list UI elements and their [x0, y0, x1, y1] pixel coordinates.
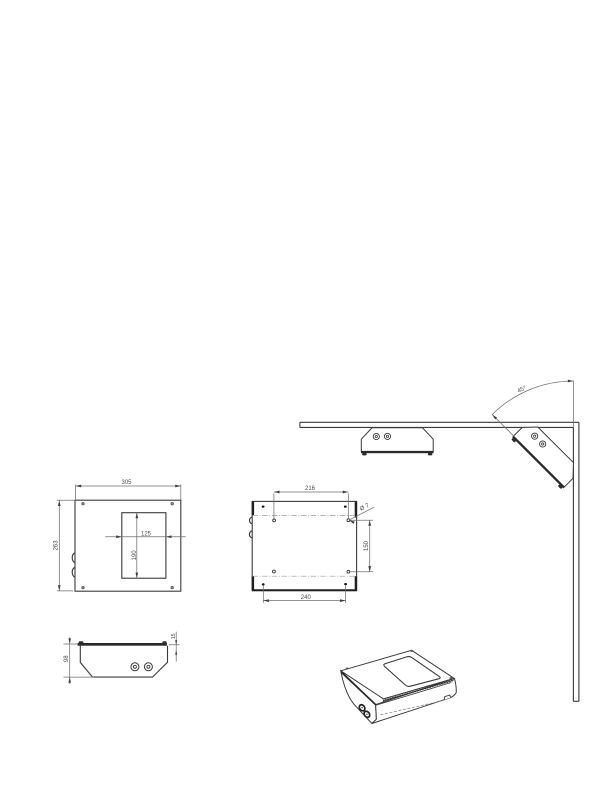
svg-text:216: 216 [305, 486, 316, 492]
svg-text:305: 305 [121, 480, 132, 486]
svg-text:15: 15 [171, 633, 177, 639]
svg-text:Ø 7: Ø 7 [359, 502, 371, 512]
svg-text:125: 125 [141, 532, 152, 538]
svg-text:240: 240 [301, 595, 312, 601]
svg-text:98: 98 [64, 655, 70, 662]
svg-text:150: 150 [364, 540, 370, 551]
svg-text:263: 263 [54, 540, 60, 551]
svg-text:190: 190 [132, 550, 138, 561]
